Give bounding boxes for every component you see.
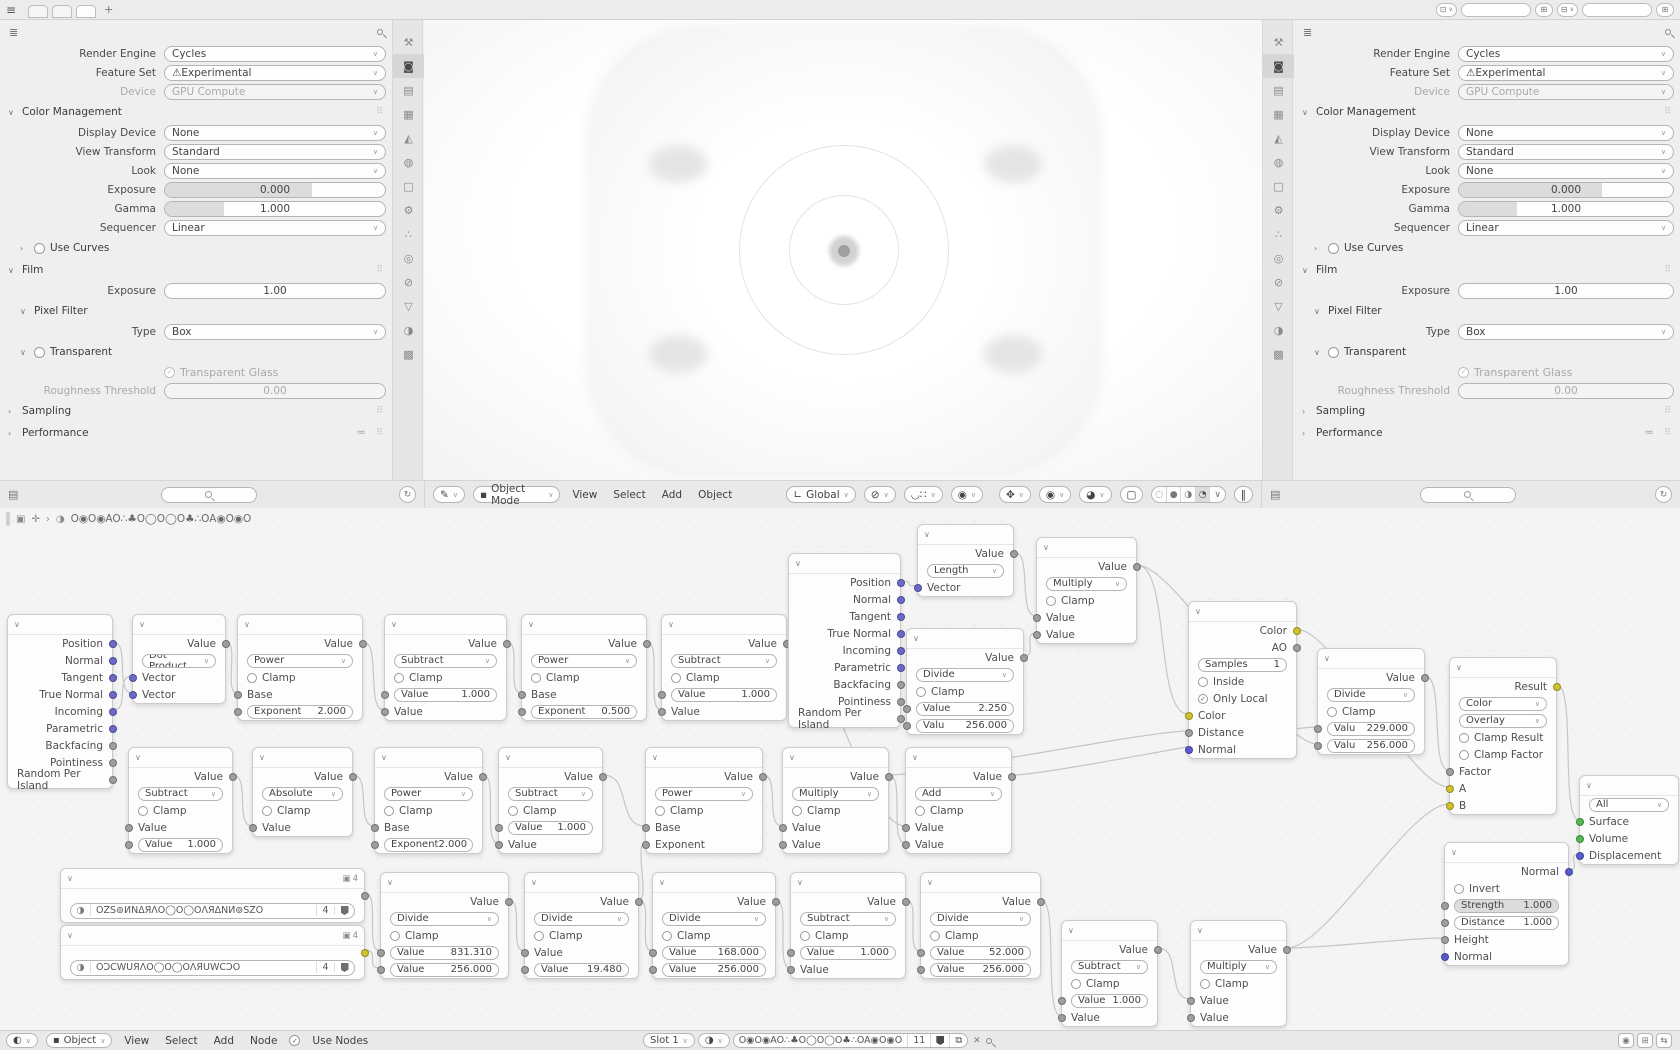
select-subtract[interactable]: Subtract∨ — [508, 787, 593, 801]
node-header[interactable]: ∨ — [1580, 776, 1678, 796]
node-geometry-1[interactable]: ∨PositionNormalTangentTrue NormalIncomin… — [7, 614, 113, 789]
menu-object[interactable]: Object — [694, 489, 736, 501]
node-math-power-4[interactable]: ∨ValuePower∨ClampBaseExponent — [645, 747, 763, 854]
output-socket[interactable] — [1154, 946, 1162, 954]
output-socket[interactable] — [643, 640, 651, 648]
input-socket[interactable] — [521, 949, 529, 957]
tab-render-icon[interactable]: ◙ — [393, 54, 424, 78]
shader-type-dropdown[interactable]: ▪Object∨ — [46, 1033, 112, 1048]
input-socket[interactable] — [917, 949, 925, 957]
prop-field-render-engine[interactable]: Cycles∨ — [164, 46, 386, 62]
output-socket[interactable] — [109, 759, 117, 767]
input-socket[interactable] — [779, 824, 787, 832]
number-field[interactable]: Value256.000 — [662, 963, 766, 977]
input-socket[interactable] — [1441, 919, 1449, 927]
pin-icon[interactable] — [376, 28, 384, 36]
collapse-icon[interactable]: ∨ — [913, 634, 919, 643]
output-socket[interactable] — [229, 773, 237, 781]
shading-wireframe-icon[interactable]: ◌ — [1152, 486, 1167, 503]
snap-target-dropdown[interactable]: ⊘∨ — [864, 486, 896, 503]
tab-physics-icon[interactable]: ◎ — [1263, 246, 1294, 270]
tab-physics-icon[interactable]: ◎ — [393, 246, 424, 270]
refresh-button[interactable]: ↻ — [399, 486, 416, 503]
input-socket[interactable] — [658, 691, 666, 699]
fake-user-button[interactable] — [930, 1034, 949, 1047]
input-socket[interactable] — [1058, 1014, 1066, 1022]
tab-modifiers-icon[interactable]: ⚙ — [393, 198, 424, 222]
section-performance[interactable]: ›Performance≔⠿ — [1294, 422, 1680, 444]
select-subtract[interactable]: Subtract∨ — [1071, 960, 1148, 974]
input-socket[interactable] — [649, 949, 657, 957]
transform-orientation-dropdown[interactable]: ∟Global∨ — [786, 486, 855, 503]
editor-corner-handle[interactable] — [6, 512, 10, 526]
editor-type-icon[interactable]: ▤ — [1270, 488, 1280, 501]
collapse-icon[interactable]: ∨ — [531, 878, 537, 887]
input-socket[interactable] — [495, 824, 503, 832]
editor-type-dropdown[interactable]: ◐∨ — [6, 1033, 38, 1048]
select-multiply[interactable]: Multiply∨ — [792, 787, 879, 801]
new-scene-button[interactable]: ⊞ — [1535, 3, 1553, 17]
checkbox[interactable] — [930, 931, 940, 941]
tab-material-icon[interactable]: ◑ — [1263, 318, 1294, 342]
input-socket[interactable] — [234, 691, 242, 699]
input-socket[interactable] — [371, 841, 379, 849]
select-power[interactable]: Power∨ — [655, 787, 753, 801]
input-socket[interactable] — [381, 708, 389, 716]
prop-field-device[interactable]: GPU Compute∨ — [1458, 84, 1674, 100]
prop-field-display-device[interactable]: None∨ — [164, 125, 386, 141]
node-math-power-3[interactable]: ∨ValuePower∨ClampBaseExponent2.000 — [374, 747, 483, 854]
collapse-icon[interactable]: ∨ — [795, 559, 801, 568]
node-image-texture-1[interactable]: ∨▣4◑OZS⊚ИNΔЯΛO◯O◯OΛЯΔNИ⊚SZO4 — [60, 868, 365, 923]
properties-filter-icon[interactable]: ≣ — [9, 26, 18, 39]
input-socket[interactable] — [1058, 997, 1066, 1005]
select-color[interactable]: Color∨ — [1459, 697, 1547, 711]
select-absolute[interactable]: Absolute∨ — [262, 787, 343, 801]
number-field[interactable]: Samples1 — [1198, 658, 1287, 672]
output-socket[interactable] — [505, 898, 513, 906]
node-math-subtract-4[interactable]: ∨ValueSubtract∨ClampValue1.000Value — [498, 747, 603, 854]
select-multiply[interactable]: Multiply∨ — [1046, 577, 1127, 591]
workspace-tab[interactable] — [76, 5, 96, 18]
tab-data-icon[interactable]: ▽ — [1263, 294, 1294, 318]
image-name-field[interactable]: OZS⊚ИNΔЯΛO◯O◯OΛЯΔNИ⊚SZO — [91, 905, 316, 916]
input-socket[interactable] — [649, 966, 657, 974]
number-field[interactable]: Strength1.000 — [1454, 899, 1559, 913]
node-math-power-1[interactable]: ∨ValuePower∨ClampBaseExponent2.000 — [237, 614, 363, 721]
menu-node[interactable]: Node — [246, 1035, 281, 1047]
number-field[interactable]: Value19.480 — [534, 963, 629, 977]
select-subtract[interactable]: Subtract∨ — [800, 912, 896, 926]
pin-icon[interactable] — [984, 1036, 992, 1044]
output-socket[interactable] — [109, 708, 117, 716]
slot-dropdown[interactable]: Slot 1∨ — [643, 1033, 695, 1048]
prop-field-look[interactable]: None∨ — [1458, 163, 1674, 179]
collapse-icon[interactable]: ∨ — [67, 931, 73, 940]
input-socket[interactable] — [1185, 746, 1193, 754]
node-header[interactable]: ∨ — [646, 748, 762, 768]
prop-field-view-transform[interactable]: Standard∨ — [164, 144, 386, 160]
viewport-3d[interactable] — [424, 20, 1262, 480]
checkbox[interactable] — [508, 806, 518, 816]
workspace-tab[interactable] — [52, 5, 72, 18]
collapse-icon[interactable]: ∨ — [1197, 926, 1203, 935]
prop-field-view-transform[interactable]: Standard∨ — [1458, 144, 1674, 160]
input-socket[interactable] — [1185, 712, 1193, 720]
input-socket[interactable] — [658, 708, 666, 716]
output-socket[interactable] — [1133, 563, 1141, 571]
checkbox[interactable] — [531, 673, 541, 683]
section-sampling[interactable]: ›Sampling⠿ — [1294, 400, 1680, 422]
number-field[interactable]: Valu256.000 — [1327, 739, 1415, 753]
node-math-divide-19[interactable]: ∨ValueDivide∨ClampValueValue19.480 — [524, 872, 639, 979]
collapse-icon[interactable]: ∨ — [135, 753, 141, 762]
use-nodes-checkbox[interactable]: ✓ — [289, 1035, 300, 1046]
checkbox[interactable] — [662, 931, 672, 941]
prop-field-roughness-threshold[interactable]: 0.00 — [164, 383, 386, 399]
input-socket[interactable] — [495, 841, 503, 849]
node-math-add[interactable]: ∨ValueAdd∨ClampValueValue — [905, 747, 1012, 854]
prop-field-type[interactable]: Box∨ — [1458, 324, 1674, 340]
tab-particles-icon[interactable]: ∴ — [1263, 222, 1294, 246]
node-math-multiply-3[interactable]: ∨ValueMultiply∨ClampValueValue — [1190, 920, 1287, 1027]
prop-field-exposure[interactable]: 0.000 — [1458, 182, 1674, 198]
section-film[interactable]: ∨Film⠿ — [1294, 259, 1680, 281]
prop-field-exposure[interactable]: 1.00 — [164, 283, 386, 299]
collapse-icon[interactable]: ∨ — [924, 530, 930, 539]
material-browse-dropdown[interactable]: ◑∨ — [698, 1033, 730, 1048]
input-socket[interactable] — [1576, 818, 1584, 826]
number-field[interactable]: Value52.000 — [930, 946, 1031, 960]
node-header[interactable]: ∨▣4 — [61, 869, 364, 889]
input-socket[interactable] — [902, 824, 910, 832]
input-socket[interactable] — [518, 708, 526, 716]
output-socket[interactable] — [109, 776, 117, 784]
node-math-multiply-1[interactable]: ∨ValueMultiply∨ClampValueValue — [1036, 537, 1137, 644]
collapse-icon[interactable]: ∨ — [912, 753, 918, 762]
node-header[interactable]: ∨ — [499, 748, 602, 768]
input-socket[interactable] — [1314, 742, 1322, 750]
input-socket[interactable] — [642, 841, 650, 849]
tab-material-icon[interactable]: ◑ — [393, 318, 424, 342]
select-dot-product[interactable]: Dot Product∨ — [142, 654, 216, 668]
tab-constraints-icon[interactable]: ⊘ — [1263, 270, 1294, 294]
collapse-icon[interactable]: ∨ — [1324, 654, 1330, 663]
checkbox[interactable] — [800, 931, 810, 941]
snap-node-button[interactable]: ◉ — [1618, 1033, 1634, 1048]
xray-toggle[interactable]: ◕∨ — [1079, 486, 1111, 503]
shading-material-icon[interactable]: ◑ — [1181, 486, 1196, 503]
select-divide[interactable]: Divide∨ — [1327, 688, 1415, 702]
node-math-power-2[interactable]: ∨ValuePower∨ClampBaseExponent0.500 — [521, 614, 647, 721]
checkbox[interactable]: ✓ — [1198, 694, 1208, 704]
output-socket[interactable] — [885, 773, 893, 781]
tab-texture-icon[interactable]: ▩ — [393, 342, 424, 366]
input-socket[interactable] — [1033, 631, 1041, 639]
output-socket[interactable] — [897, 715, 905, 723]
node-header[interactable]: ∨ — [906, 748, 1011, 768]
subsection-pixel-filter[interactable]: ∨Pixel Filter — [12, 300, 392, 322]
node-header[interactable]: ∨ — [921, 873, 1040, 893]
input-socket[interactable] — [1033, 614, 1041, 622]
select-overlay[interactable]: Overlay∨ — [1459, 714, 1547, 728]
output-socket[interactable] — [897, 664, 905, 672]
checkbox[interactable] — [915, 806, 925, 816]
number-field[interactable]: Valu256.000 — [916, 719, 1014, 733]
node-header[interactable]: ∨ — [385, 615, 506, 635]
input-socket[interactable] — [1576, 852, 1584, 860]
output-socket[interactable] — [897, 681, 905, 689]
node-header[interactable]: ∨ — [1450, 658, 1556, 678]
tab-view-layer-icon[interactable]: ▦ — [393, 102, 424, 126]
unlink-button[interactable]: ✕ — [971, 1036, 983, 1046]
input-socket[interactable] — [1187, 997, 1195, 1005]
tab-scene-icon[interactable]: ◭ — [1263, 126, 1294, 150]
fake-user-button[interactable] — [334, 906, 354, 915]
tab-output-icon[interactable]: ▤ — [393, 78, 424, 102]
material-name-field[interactable]: O◉O◉AO∴♣O◯O◯O♣∴OA◉O◉O — [734, 1034, 908, 1047]
user-count-badge[interactable]: 11 — [907, 1034, 930, 1047]
output-socket[interactable] — [599, 773, 607, 781]
input-socket[interactable] — [1446, 785, 1454, 793]
input-socket[interactable] — [1446, 768, 1454, 776]
node-math-divide-229[interactable]: ∨ValueDivide∨ClampValu229.000Valu256.000 — [1317, 648, 1425, 755]
output-socket[interactable] — [1553, 683, 1561, 691]
number-field[interactable]: Value1.000 — [394, 688, 497, 702]
shading-solid-icon[interactable]: ● — [1167, 486, 1182, 503]
tab-data-icon[interactable]: ▽ — [393, 294, 424, 318]
tab-texture-icon[interactable]: ▩ — [1263, 342, 1294, 366]
select-power[interactable]: Power∨ — [384, 787, 473, 801]
select-subtract[interactable]: Subtract∨ — [394, 654, 497, 668]
subsection-use-curves[interactable]: ›Use Curves — [1306, 237, 1680, 259]
node-header[interactable]: ∨ — [907, 629, 1023, 649]
node-header[interactable]: ∨ — [918, 525, 1013, 545]
snapping-dropdown[interactable]: ◡∷∨ — [904, 486, 943, 503]
checkbox[interactable] — [138, 806, 148, 816]
collapse-icon[interactable]: ∨ — [67, 874, 73, 883]
output-socket[interactable] — [361, 892, 369, 900]
input-socket[interactable] — [903, 722, 911, 730]
node-header[interactable]: ∨ — [133, 615, 225, 635]
node-math-divide-2250[interactable]: ∨ValueDivide∨ClampValue2.250Valu256.000 — [906, 628, 1024, 735]
grid-snap-button[interactable]: ⊞ — [1637, 1033, 1653, 1048]
node-mix-color[interactable]: ∨ResultColor∨Overlay∨Clamp ResultClamp F… — [1449, 657, 1557, 815]
select-divide[interactable]: Divide∨ — [662, 912, 766, 926]
prop-field-type[interactable]: Box∨ — [164, 324, 386, 340]
input-socket[interactable] — [1576, 835, 1584, 843]
checkbox[interactable] — [792, 806, 802, 816]
node-header[interactable]: ∨ — [1062, 921, 1157, 941]
node-header[interactable]: ∨ — [253, 748, 352, 768]
output-socket[interactable] — [897, 613, 905, 621]
input-socket[interactable] — [1185, 729, 1193, 737]
checkbox[interactable] — [916, 687, 926, 697]
node-math-multiply-2[interactable]: ∨ValueMultiply∨ClampValueValue — [782, 747, 889, 854]
output-socket[interactable] — [1283, 946, 1291, 954]
node-math-divide-52[interactable]: ∨ValueDivide∨ClampValue52.000Value256.00… — [920, 872, 1041, 979]
output-socket[interactable] — [1293, 627, 1301, 635]
output-socket[interactable] — [1037, 898, 1045, 906]
tab-constraints-icon[interactable]: ⊘ — [393, 270, 424, 294]
number-field[interactable]: Exponent0.500 — [531, 705, 637, 719]
select-divide[interactable]: Divide∨ — [930, 912, 1031, 926]
output-socket[interactable] — [349, 773, 357, 781]
subsection-pixel-filter[interactable]: ∨Pixel Filter — [1306, 300, 1680, 322]
prop-field-gamma[interactable]: 1.000 — [1458, 201, 1674, 217]
node-header[interactable]: ∨ — [525, 873, 638, 893]
refresh-button[interactable]: ↻ — [1655, 486, 1672, 503]
prop-field-feature-set[interactable]: ⚠ Experimental∨ — [164, 65, 386, 81]
search-input[interactable] — [1420, 487, 1516, 503]
checkbox[interactable]: ✓ — [164, 367, 175, 378]
checkbox[interactable] — [1454, 884, 1464, 894]
node-header[interactable]: ∨ — [1191, 921, 1286, 941]
search-input[interactable] — [161, 487, 257, 503]
tab-view-layer-icon[interactable]: ▦ — [1263, 102, 1294, 126]
mode-dropdown[interactable]: ▪Object Mode∨ — [473, 486, 561, 503]
tab-world-icon[interactable]: ◍ — [393, 150, 424, 174]
number-field[interactable]: Valu229.000 — [1327, 722, 1415, 736]
output-socket[interactable] — [109, 674, 117, 682]
checkbox[interactable] — [655, 806, 665, 816]
gizmos-dropdown[interactable]: ✥∨ — [999, 486, 1031, 503]
checkbox[interactable] — [262, 806, 272, 816]
select-divide[interactable]: Divide∨ — [534, 912, 629, 926]
node-image-texture-2[interactable]: ∨▣4◑OƆCWUЯΛO◯O◯OΛЯUWCƆO4 — [60, 925, 365, 980]
checkbox[interactable] — [1327, 707, 1337, 717]
tab-object-icon[interactable]: □ — [1263, 174, 1294, 198]
input-socket[interactable] — [1441, 936, 1449, 944]
prop-field-exposure[interactable]: 0.000 — [164, 182, 386, 198]
collapse-icon[interactable]: ∨ — [259, 753, 265, 762]
node-math-divide-168[interactable]: ∨ValueDivide∨ClampValue168.000Value256.0… — [652, 872, 776, 979]
node-vector-math-dot[interactable]: ∨ValueDot Product∨VectorVector — [132, 614, 226, 704]
input-socket[interactable] — [1446, 802, 1454, 810]
node-material-output[interactable]: ∨All∨SurfaceVolumeDisplacement — [1579, 775, 1679, 865]
collapse-icon[interactable]: ∨ — [391, 620, 397, 629]
checkbox[interactable] — [1459, 733, 1469, 743]
node-header[interactable]: ∨ — [1445, 843, 1568, 863]
fake-user-button[interactable] — [334, 963, 354, 972]
section-film[interactable]: ∨Film⠿ — [0, 259, 392, 281]
shader-node-editor[interactable]: ▣ ✛ › ◑ O◉O◉AO∴♣O◯O◯O♣∴OA◉O◉O ∨PositionN… — [0, 508, 1680, 1030]
output-socket[interactable] — [109, 640, 117, 648]
output-socket[interactable] — [897, 596, 905, 604]
menu-add[interactable]: Add — [210, 1035, 238, 1047]
output-socket[interactable] — [222, 640, 230, 648]
checkbox[interactable] — [1328, 347, 1339, 358]
node-header[interactable]: ∨ — [1318, 649, 1424, 669]
checkbox[interactable] — [1198, 677, 1208, 687]
input-socket[interactable] — [787, 966, 795, 974]
tab-world-icon[interactable]: ◍ — [1263, 150, 1294, 174]
input-socket[interactable] — [787, 949, 795, 957]
output-socket[interactable] — [897, 647, 905, 655]
prop-field-sequencer[interactable]: Linear∨ — [1458, 220, 1674, 236]
tab-output-icon[interactable]: ▤ — [1263, 78, 1294, 102]
select-all[interactable]: All∨ — [1589, 798, 1669, 812]
collapse-icon[interactable]: ∨ — [1456, 663, 1462, 672]
number-field[interactable]: Distance1.000 — [1454, 916, 1559, 930]
select-add[interactable]: Add∨ — [915, 787, 1002, 801]
user-count-badge[interactable]: 4 — [316, 905, 334, 916]
overlays-dropdown[interactable]: ◉∨ — [1039, 486, 1071, 503]
collapse-icon[interactable]: ∨ — [14, 620, 20, 629]
input-socket[interactable] — [917, 966, 925, 974]
input-socket[interactable] — [1441, 902, 1449, 910]
output-socket[interactable] — [897, 579, 905, 587]
node-ambient-occlusion[interactable]: ∨ColorAOSamples1Inside✓Only LocalColorDi… — [1188, 601, 1297, 759]
output-socket[interactable] — [1020, 654, 1028, 662]
scene-icon[interactable]: ⊡∨ — [1436, 3, 1457, 17]
checkbox[interactable] — [34, 347, 45, 358]
output-socket[interactable] — [359, 640, 367, 648]
tab-particles-icon[interactable]: ∴ — [393, 222, 424, 246]
editor-type-icon[interactable]: ▤ — [8, 488, 18, 501]
editor-type-dropdown[interactable]: ✎∨ — [433, 486, 465, 503]
select-divide[interactable]: Divide∨ — [390, 912, 499, 926]
checkbox[interactable] — [34, 243, 45, 254]
select-subtract[interactable]: Subtract∨ — [138, 787, 223, 801]
prop-field-display-device[interactable]: None∨ — [1458, 125, 1674, 141]
node-header[interactable]: ∨ — [1189, 602, 1296, 622]
output-socket[interactable] — [1421, 674, 1429, 682]
checkbox[interactable] — [394, 673, 404, 683]
input-socket[interactable] — [1187, 1014, 1195, 1022]
select-divide[interactable]: Divide∨ — [916, 668, 1014, 682]
checkbox[interactable] — [534, 931, 544, 941]
collapse-icon[interactable]: ∨ — [652, 753, 658, 762]
collapse-icon[interactable]: ∨ — [139, 620, 145, 629]
menu-add[interactable]: Add — [658, 489, 686, 501]
section-color-management[interactable]: ∨Color Management⠿ — [1294, 101, 1680, 123]
node-geometry-2[interactable]: ∨PositionNormalTangentTrue NormalIncomin… — [788, 553, 901, 728]
output-socket[interactable] — [772, 898, 780, 906]
prop-field-exposure[interactable]: 1.00 — [1458, 283, 1674, 299]
checkbox[interactable] — [1046, 596, 1056, 606]
output-socket[interactable] — [109, 691, 117, 699]
input-socket[interactable] — [381, 691, 389, 699]
number-field[interactable]: Value256.000 — [930, 963, 1031, 977]
collapse-icon[interactable]: ∨ — [244, 620, 250, 629]
node-header[interactable]: ∨ — [522, 615, 646, 635]
subsection-transparent[interactable]: ∨Transparent — [1306, 341, 1680, 363]
node-header[interactable]: ∨ — [129, 748, 232, 768]
checkbox[interactable] — [1200, 979, 1210, 989]
scene-name-field[interactable] — [1461, 3, 1531, 17]
number-field[interactable]: Value168.000 — [662, 946, 766, 960]
menu-icon[interactable]: ≡ — [6, 3, 16, 17]
output-socket[interactable] — [109, 742, 117, 750]
menu-view[interactable]: View — [120, 1035, 153, 1047]
material-icon[interactable]: ◑ — [71, 962, 91, 973]
image-name-field[interactable]: OƆCWUЯΛO◯O◯OΛЯUWCƆO — [91, 962, 316, 973]
collapse-icon[interactable]: ∨ — [381, 753, 387, 762]
add-workspace-button[interactable]: + — [104, 3, 113, 16]
new-view-layer-button[interactable]: ⊞ — [1656, 3, 1674, 17]
material-icon[interactable]: ◑ — [71, 905, 91, 916]
view-layer-field[interactable] — [1582, 3, 1652, 17]
number-field[interactable]: Value1.000 — [800, 946, 896, 960]
select-multiply[interactable]: Multiply∨ — [1200, 960, 1277, 974]
output-socket[interactable] — [503, 640, 511, 648]
number-field[interactable]: Value1.000 — [671, 688, 777, 702]
node-header[interactable]: ∨ — [381, 873, 508, 893]
output-socket[interactable] — [897, 630, 905, 638]
output-socket[interactable] — [1565, 868, 1573, 876]
output-socket[interactable] — [109, 725, 117, 733]
